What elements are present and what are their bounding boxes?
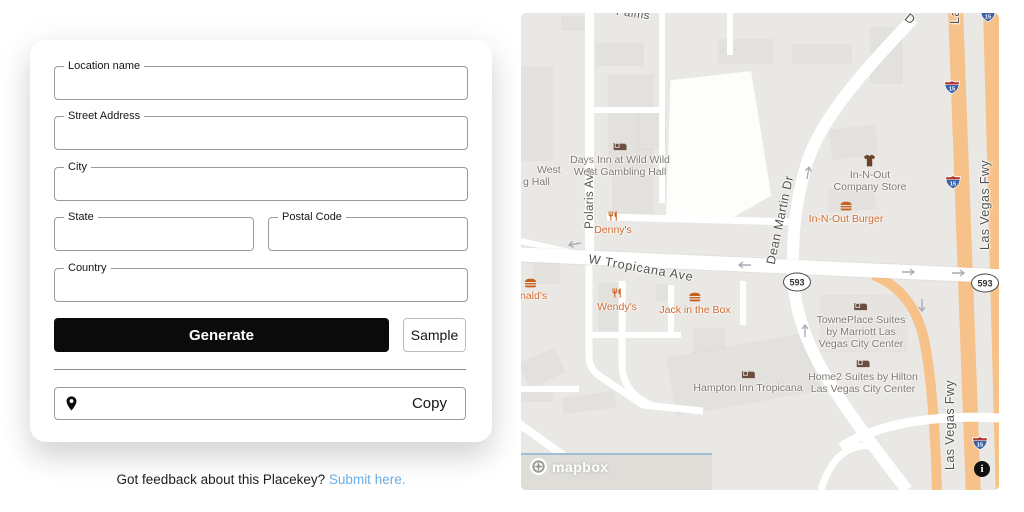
- poi-mcdonalds-partial: nald's: [524, 277, 547, 302]
- country-field: Country: [54, 268, 468, 302]
- street-label-las-vegas-fwy: Las Vegas Fwy: [943, 380, 957, 470]
- city-field: City: [54, 167, 468, 201]
- country-input[interactable]: [55, 269, 467, 301]
- traffic-direction-arrow: [951, 269, 965, 277]
- traffic-direction-arrow: [918, 298, 926, 312]
- street-label-las-vegas-fwy: Las Vegas Fwy: [978, 160, 992, 250]
- restaurant-icon: [607, 210, 618, 222]
- burger-icon: [524, 277, 537, 288]
- feedback-line: Got feedback about this Placekey? Submit…: [30, 472, 492, 487]
- placekey-app: { "form": { "fields": [ {"label": "Locat…: [0, 0, 1024, 512]
- interstate-15-shield: 15: [945, 175, 961, 190]
- location-name-input[interactable]: [55, 67, 467, 99]
- mapbox-logo-icon: [529, 457, 548, 476]
- poi-gambling-hall-partial: Westg Hall: [537, 164, 561, 188]
- interstate-15-shield: 15: [944, 80, 960, 95]
- place-pin-icon: [63, 395, 80, 412]
- bed-icon: [741, 368, 755, 380]
- copy-button[interactable]: Copy: [406, 394, 453, 413]
- poi-jack-in-the-box: Jack in the Box: [659, 291, 730, 316]
- road-dean-martin-dr: [793, 19, 913, 490]
- street-address-input[interactable]: [55, 117, 467, 149]
- mapbox-wordmark: mapbox: [552, 459, 609, 475]
- route-shield-593: 593: [971, 274, 999, 293]
- placekey-form-card: Location name Street Address City State …: [30, 40, 492, 442]
- poi-in-n-out-burger: In-N-Out Burger: [809, 200, 884, 225]
- city-input[interactable]: [55, 168, 467, 200]
- sample-button[interactable]: Sample: [403, 318, 466, 352]
- traffic-direction-arrow: [738, 261, 752, 269]
- tshirt-icon: [863, 154, 877, 167]
- poi-days-inn: Days Inn at Wild WildWest Gambling Hall: [570, 140, 670, 178]
- road-minor: [821, 446, 875, 490]
- state-field: State: [54, 217, 254, 251]
- map[interactable]: Palms Polaris Ave W Tropicana Ave Dean M…: [521, 13, 999, 490]
- svg-text:15: 15: [949, 87, 955, 93]
- traffic-direction-arrow: [801, 324, 809, 338]
- location-name-field: Location name: [54, 66, 468, 100]
- poi-wendys: Wendy's: [597, 287, 637, 313]
- interstate-15-shield-partial: 15: [980, 13, 996, 23]
- map-info-button[interactable]: i: [974, 461, 990, 477]
- feedback-submit-link[interactable]: Submit here.: [329, 472, 406, 487]
- burger-icon: [688, 291, 701, 302]
- interstate-15-shield: 15: [972, 436, 988, 451]
- generate-button[interactable]: Generate: [54, 318, 389, 352]
- svg-text:15: 15: [977, 443, 983, 449]
- feedback-text: Got feedback about this Placekey?: [117, 472, 329, 487]
- street-address-field: Street Address: [54, 116, 468, 150]
- postal-code-field: Postal Code: [268, 217, 468, 251]
- bed-icon: [856, 357, 870, 369]
- state-input[interactable]: [55, 218, 253, 250]
- svg-text:15: 15: [985, 15, 991, 21]
- bed-icon: [854, 300, 868, 312]
- postal-code-input[interactable]: [269, 218, 467, 250]
- svg-text:15: 15: [950, 182, 956, 188]
- poi-home2-suites: Home2 Suites by HiltonLas Vegas City Cen…: [808, 357, 918, 395]
- poi-hampton-inn: Hampton Inn Tropicana: [693, 368, 802, 394]
- burger-icon: [839, 200, 852, 211]
- bed-icon: [613, 140, 627, 152]
- poi-towneplace-suites: TownePlace Suitesby Marriott LasVegas Ci…: [817, 300, 906, 350]
- placekey-result-row: Copy: [54, 387, 466, 420]
- restaurant-icon: [612, 287, 623, 299]
- mapbox-logo[interactable]: mapbox: [529, 457, 609, 476]
- poi-dennys: Denny's: [594, 210, 632, 236]
- street-label-las-vegas-fwy-partial: Las Vegas Fwy: [948, 13, 962, 24]
- poi-in-n-out-company-store: In-N-OutCompany Store: [834, 154, 907, 193]
- divider: [54, 369, 466, 370]
- route-shield-593: 593: [783, 273, 811, 292]
- traffic-direction-arrow: [901, 268, 915, 276]
